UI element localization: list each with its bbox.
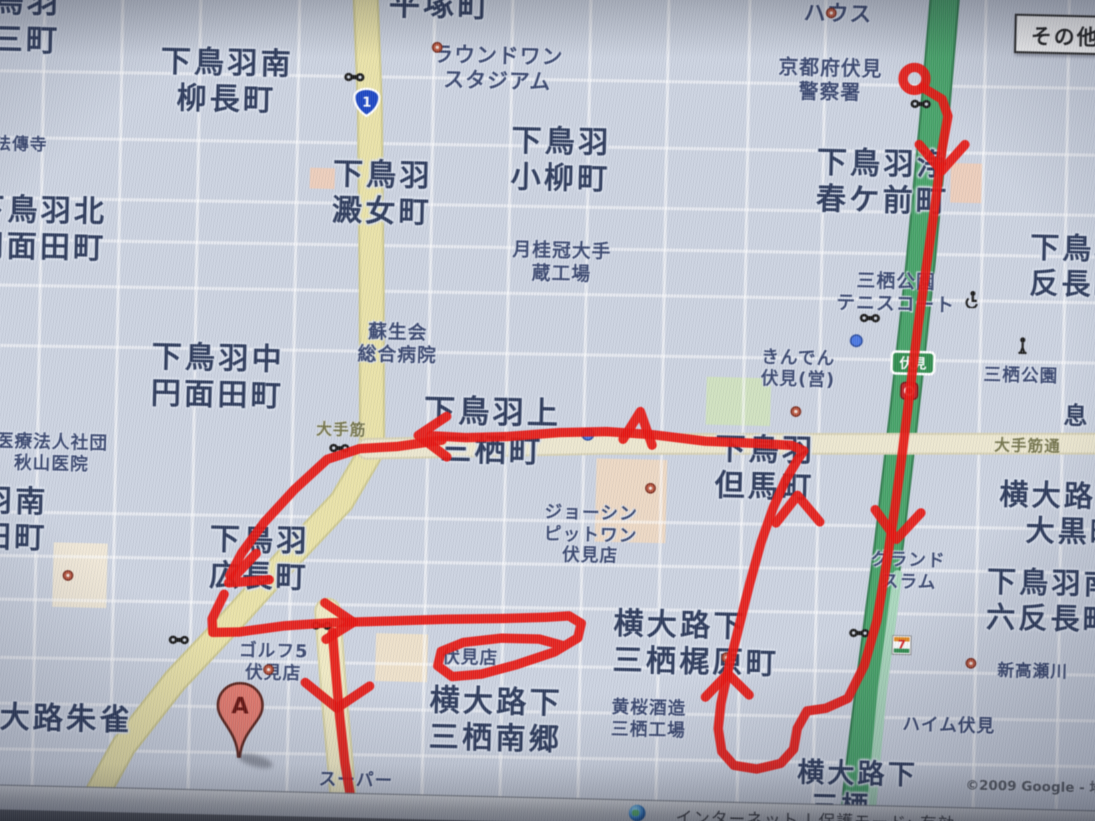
red-route-stroke-south-branch xyxy=(329,632,355,796)
browser-viewport: 下鳥羽中三町下鳥羽南柳長町下鳥羽北円面田町平塚町下鳥羽澱女町下鳥羽小柳町下鳥羽中… xyxy=(0,0,1095,821)
red-route-stroke-bottom-east-and-loop xyxy=(211,594,582,680)
monitor-photo: 下鳥羽中三町下鳥羽南柳長町下鳥羽北円面田町平塚町下鳥羽澱女町下鳥羽小柳町下鳥羽中… xyxy=(0,0,1095,821)
red-route-stroke-southwest-diagonal xyxy=(230,435,442,580)
more-button[interactable]: その他 xyxy=(1014,14,1095,57)
internet-zone-globe-icon xyxy=(629,805,646,821)
red-route-overlay xyxy=(0,0,1095,821)
red-route-stroke-corner-check xyxy=(623,411,653,445)
red-route-arrowhead xyxy=(776,495,820,524)
map-canvas[interactable]: 下鳥羽中三町下鳥羽南柳長町下鳥羽北円面田町平塚町下鳥羽澱女町下鳥羽小柳町下鳥羽中… xyxy=(0,0,1095,821)
internet-zone-label: インターネット | 保護モード: 有効 xyxy=(675,804,955,821)
